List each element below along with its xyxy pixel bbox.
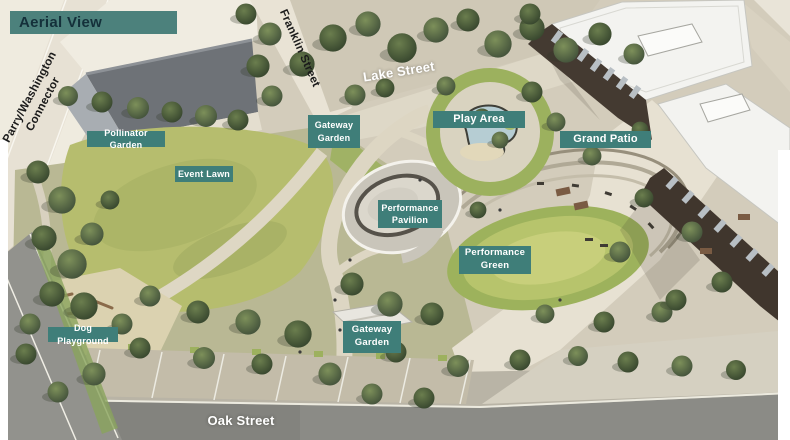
page-title: Aerial View [10, 11, 177, 34]
label-gateway-garden-north: Gateway Garden [308, 115, 360, 148]
label-play-area: Play Area [433, 111, 525, 128]
label-performance-green: Performance Green [459, 246, 531, 274]
left-margin [0, 140, 8, 440]
right-margin [778, 150, 790, 440]
label-event-lawn: Event Lawn [175, 166, 233, 182]
street-label-oak-street: Oak Street [206, 413, 276, 430]
label-gateway-garden-south: Gateway Garden [343, 321, 401, 353]
label-dog-playground: Dog Playground [48, 327, 118, 342]
label-pollinator-garden: Pollinator Garden [87, 131, 165, 147]
label-grand-patio: Grand Patio [560, 131, 651, 148]
aerial-view-plan: Aerial View Parry/Washington Connector F… [0, 0, 790, 440]
label-performance-pavilion: Performance Pavilion [378, 200, 442, 228]
